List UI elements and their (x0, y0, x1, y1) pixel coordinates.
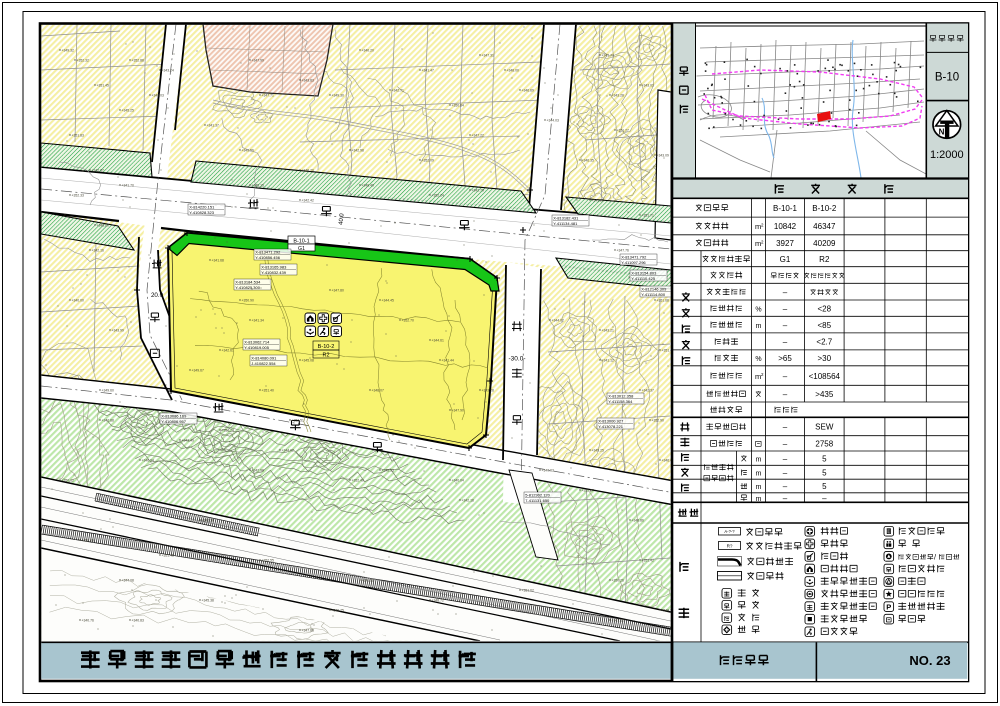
svg-text:R?: R? (727, 544, 733, 549)
svg-text:40209: 40209 (813, 239, 836, 248)
svg-text:10842: 10842 (774, 222, 797, 231)
svg-text:+347.76: +347.76 (617, 249, 629, 253)
svg-text:Y-411097.296: Y-411097.296 (621, 260, 646, 265)
svg-text:40.0: 40.0 (338, 212, 345, 225)
svg-text:+351.27: +351.27 (582, 489, 594, 493)
svg-text:m: m (756, 323, 762, 330)
svg-text:+342.16: +342.16 (92, 249, 104, 253)
svg-text:–: – (783, 494, 788, 503)
svg-text:+340.63: +340.63 (542, 469, 554, 473)
svg-text:+350.84: +350.84 (452, 104, 464, 108)
svg-text:R2: R2 (323, 353, 330, 359)
svg-text:+343.09: +343.09 (657, 154, 669, 158)
svg-text:+341.73: +341.73 (602, 54, 614, 58)
svg-text:+347.90: +347.90 (452, 409, 464, 413)
svg-text:+342.38: +342.38 (202, 519, 214, 523)
svg-text:+351.27: +351.27 (617, 129, 629, 133)
svg-text:+349.75: +349.75 (332, 609, 344, 613)
svg-text:B-10-1: B-10-1 (773, 204, 798, 213)
svg-text:+343.24: +343.24 (162, 69, 174, 73)
svg-text:B-10-1: B-10-1 (293, 238, 309, 244)
svg-text:+348.72: +348.72 (432, 599, 444, 603)
svg-text:+340.00: +340.00 (72, 299, 84, 303)
svg-text:+349.60: +349.60 (102, 389, 114, 393)
svg-text:+346.35: +346.35 (582, 159, 594, 163)
svg-text:+351.45: +351.45 (97, 84, 109, 88)
svg-text:m: m (756, 484, 762, 491)
svg-text:–: – (783, 482, 788, 491)
svg-text:>30: >30 (818, 354, 832, 363)
svg-text:+351.45: +351.45 (162, 554, 174, 558)
svg-text:m: m (756, 456, 762, 463)
svg-text:Y-410856.456: Y-410856.456 (255, 255, 281, 260)
svg-text:+341.47: +341.47 (422, 69, 434, 73)
svg-text:+344.02: +344.02 (552, 319, 564, 323)
svg-text:Y-411158.364: Y-411158.364 (608, 399, 633, 404)
svg-text:m: m (756, 496, 762, 503)
svg-text:20.0: 20.0 (151, 292, 164, 299)
svg-text:+344.61: +344.61 (432, 339, 444, 343)
svg-text:<85: <85 (818, 321, 832, 330)
svg-text:+343.83: +343.83 (302, 79, 314, 83)
svg-text:–: – (783, 468, 788, 477)
svg-text:Y-410806.957: Y-410806.957 (161, 419, 187, 424)
svg-text:Y-413078.221: Y-413078.221 (598, 424, 624, 429)
svg-text:+349.56: +349.56 (242, 149, 254, 153)
svg-text:+342.98: +342.98 (352, 149, 364, 153)
svg-text:+351.83: +351.83 (72, 134, 84, 138)
svg-text:–: – (783, 454, 788, 463)
svg-text:Y-411114.800: Y-411114.800 (641, 292, 666, 297)
svg-text:+344.08: +344.08 (122, 579, 134, 583)
svg-text:+348.49: +348.49 (362, 184, 374, 188)
svg-text:+349.32: +349.32 (62, 49, 74, 53)
svg-text:+342.18: +342.18 (462, 499, 474, 503)
svg-text:R2: R2 (819, 255, 830, 264)
svg-text:J-410822.554: J-410822.554 (251, 361, 276, 366)
svg-text:+341.12: +341.12 (602, 359, 614, 363)
svg-text:+347.22: +347.22 (472, 134, 484, 138)
svg-text:<108564: <108564 (809, 372, 841, 381)
svg-text:+345.38: +345.38 (202, 599, 214, 603)
svg-text:+341.34: +341.34 (252, 319, 264, 323)
svg-text:–: – (783, 372, 788, 381)
svg-text:+341.68: +341.68 (212, 259, 224, 263)
svg-text:P: P (886, 603, 891, 612)
svg-text:+341.70: +341.70 (122, 184, 134, 188)
svg-text:+351.42: +351.42 (642, 559, 654, 563)
svg-text:+344.45: +344.45 (382, 299, 394, 303)
svg-text:+340.76: +340.76 (82, 619, 94, 623)
svg-text:B-10-2: B-10-2 (812, 204, 837, 213)
svg-text:+341.44: +341.44 (442, 359, 454, 363)
svg-text:Y-410832.439: Y-410832.439 (261, 270, 287, 275)
svg-text:2758: 2758 (815, 440, 833, 449)
svg-text:Y-410828.323: Y-410828.323 (189, 210, 215, 215)
svg-text:+343.99: +343.99 (112, 329, 124, 333)
svg-text:+352.51: +352.51 (292, 419, 304, 423)
svg-text:+345.15: +345.15 (252, 184, 264, 188)
svg-text:+343.49: +343.49 (182, 439, 194, 443)
svg-text:+347.99: +347.99 (252, 59, 264, 63)
svg-text:Y-410819.005: Y-410819.005 (244, 345, 270, 350)
svg-text:+346.69: +346.69 (522, 89, 534, 93)
svg-text:+351.71: +351.71 (642, 214, 654, 218)
svg-text:+346.20: +346.20 (302, 169, 314, 173)
svg-text:+350.90: +350.90 (242, 299, 254, 303)
svg-text:<2.7: <2.7 (816, 338, 832, 347)
svg-text:–: – (783, 440, 788, 449)
svg-text:%: % (755, 306, 761, 313)
svg-text:–: – (822, 494, 827, 503)
svg-text:-30.0-: -30.0- (509, 356, 526, 363)
svg-text:–: – (783, 423, 788, 432)
svg-text:SEW: SEW (815, 423, 834, 432)
svg-text:7-411131.650: 7-411131.650 (525, 498, 550, 503)
svg-text:+343.28: +343.28 (482, 389, 494, 393)
svg-text:+350.12: +350.12 (62, 479, 74, 483)
svg-text:+345.25: +345.25 (592, 449, 604, 453)
svg-text:+340.20: +340.20 (362, 49, 374, 53)
svg-text:+343.21: +343.21 (602, 329, 614, 333)
svg-text:+352.32: +352.32 (77, 59, 89, 63)
svg-text:+351.62: +351.62 (522, 589, 534, 593)
svg-text:+341.12: +341.12 (612, 619, 624, 623)
svg-text:+341.37: +341.37 (207, 124, 219, 128)
svg-text:+342.42: +342.42 (302, 199, 314, 203)
svg-text:+352.74: +352.74 (222, 429, 234, 433)
svg-text:+352.88: +352.88 (132, 59, 144, 63)
svg-text:+348.03: +348.03 (152, 94, 164, 98)
svg-text:+348.60: +348.60 (97, 224, 109, 228)
svg-text:+347.88: +347.88 (302, 629, 314, 633)
svg-text:+347.80: +347.80 (332, 289, 344, 293)
svg-text:+352.33: +352.33 (72, 194, 84, 198)
svg-text:–: – (783, 338, 788, 347)
svg-text:+348.00: +348.00 (507, 69, 519, 73)
svg-text:+352.70: +352.70 (402, 319, 414, 323)
svg-text:+345.08: +345.08 (302, 359, 314, 363)
svg-text:B-10-2: B-10-2 (318, 344, 335, 350)
svg-text:+348.86: +348.86 (632, 519, 644, 523)
svg-text:+340.83: +340.83 (132, 619, 144, 623)
svg-text:+343.01: +343.01 (642, 84, 654, 88)
svg-text:N: N (939, 128, 945, 137)
svg-text:+347.71: +347.71 (262, 94, 274, 98)
svg-text:+342.71: +342.71 (392, 89, 404, 93)
svg-text:+352.55: +352.55 (262, 559, 274, 563)
svg-text:+342.37: +342.37 (642, 389, 654, 393)
svg-text:%: % (755, 356, 761, 363)
svg-text:+343.28: +343.28 (612, 94, 624, 98)
svg-text:+342.98: +342.98 (252, 469, 264, 473)
svg-text:+342.79: +342.79 (472, 189, 484, 193)
svg-text:+352.09: +352.09 (422, 159, 434, 163)
svg-text:+340.04: +340.04 (452, 479, 464, 483)
svg-text:G1: G1 (780, 255, 791, 264)
svg-text:+341.25: +341.25 (592, 199, 604, 203)
svg-text:>65: >65 (778, 354, 792, 363)
svg-text:–: – (783, 304, 788, 313)
svg-text:NO. 23: NO. 23 (909, 653, 950, 668)
svg-text:Y-411110.425: Y-411110.425 (631, 276, 656, 281)
svg-text:Y-410825.300: Y-410825.300 (235, 285, 261, 290)
svg-text:+350.05: +350.05 (82, 539, 94, 543)
svg-text:5: 5 (822, 468, 827, 477)
svg-text:–: – (783, 321, 788, 330)
svg-text:+349.30: +349.30 (332, 94, 344, 98)
svg-text:>435: >435 (815, 390, 834, 399)
svg-text:+344.02: +344.02 (282, 449, 294, 453)
svg-text:–: – (783, 390, 788, 399)
svg-text:+352.24: +352.24 (432, 194, 444, 198)
svg-text:Y-411134.481: Y-411134.481 (553, 221, 578, 226)
svg-text:+341.32: +341.32 (362, 579, 374, 583)
svg-text:+348.07: +348.07 (372, 389, 384, 393)
svg-text:+352.49: +352.49 (352, 479, 364, 483)
svg-text:+345.53: +345.53 (382, 469, 394, 473)
svg-text:+346.94: +346.94 (142, 459, 154, 463)
svg-text:3927: 3927 (776, 239, 794, 248)
svg-text:A-?-?: A-?-? (724, 529, 735, 534)
svg-text:5: 5 (822, 482, 827, 491)
svg-text:+347.31: +347.31 (482, 54, 494, 58)
svg-text:+349.67: +349.67 (192, 369, 204, 373)
svg-text:5: 5 (822, 454, 827, 463)
svg-text:+351.68: +351.68 (657, 299, 669, 303)
svg-text:+351.40: +351.40 (262, 389, 274, 393)
svg-text:+342.61: +342.61 (222, 349, 234, 353)
svg-text:B-10: B-10 (935, 72, 959, 84)
svg-text:+350.26: +350.26 (612, 579, 624, 583)
svg-text:46347: 46347 (813, 222, 836, 231)
svg-text:+344.03: +344.03 (547, 119, 559, 123)
svg-text:–: – (783, 288, 788, 297)
svg-text:<28: <28 (818, 304, 832, 313)
svg-text:1:2000: 1:2000 (930, 149, 964, 161)
svg-text:+342.88: +342.88 (102, 419, 114, 423)
svg-text:+342.07: +342.07 (92, 169, 104, 173)
svg-text:m: m (756, 470, 762, 477)
svg-text:G1: G1 (298, 246, 305, 252)
svg-text:+345.25: +345.25 (122, 109, 134, 113)
svg-text:+352.90: +352.90 (652, 419, 664, 423)
